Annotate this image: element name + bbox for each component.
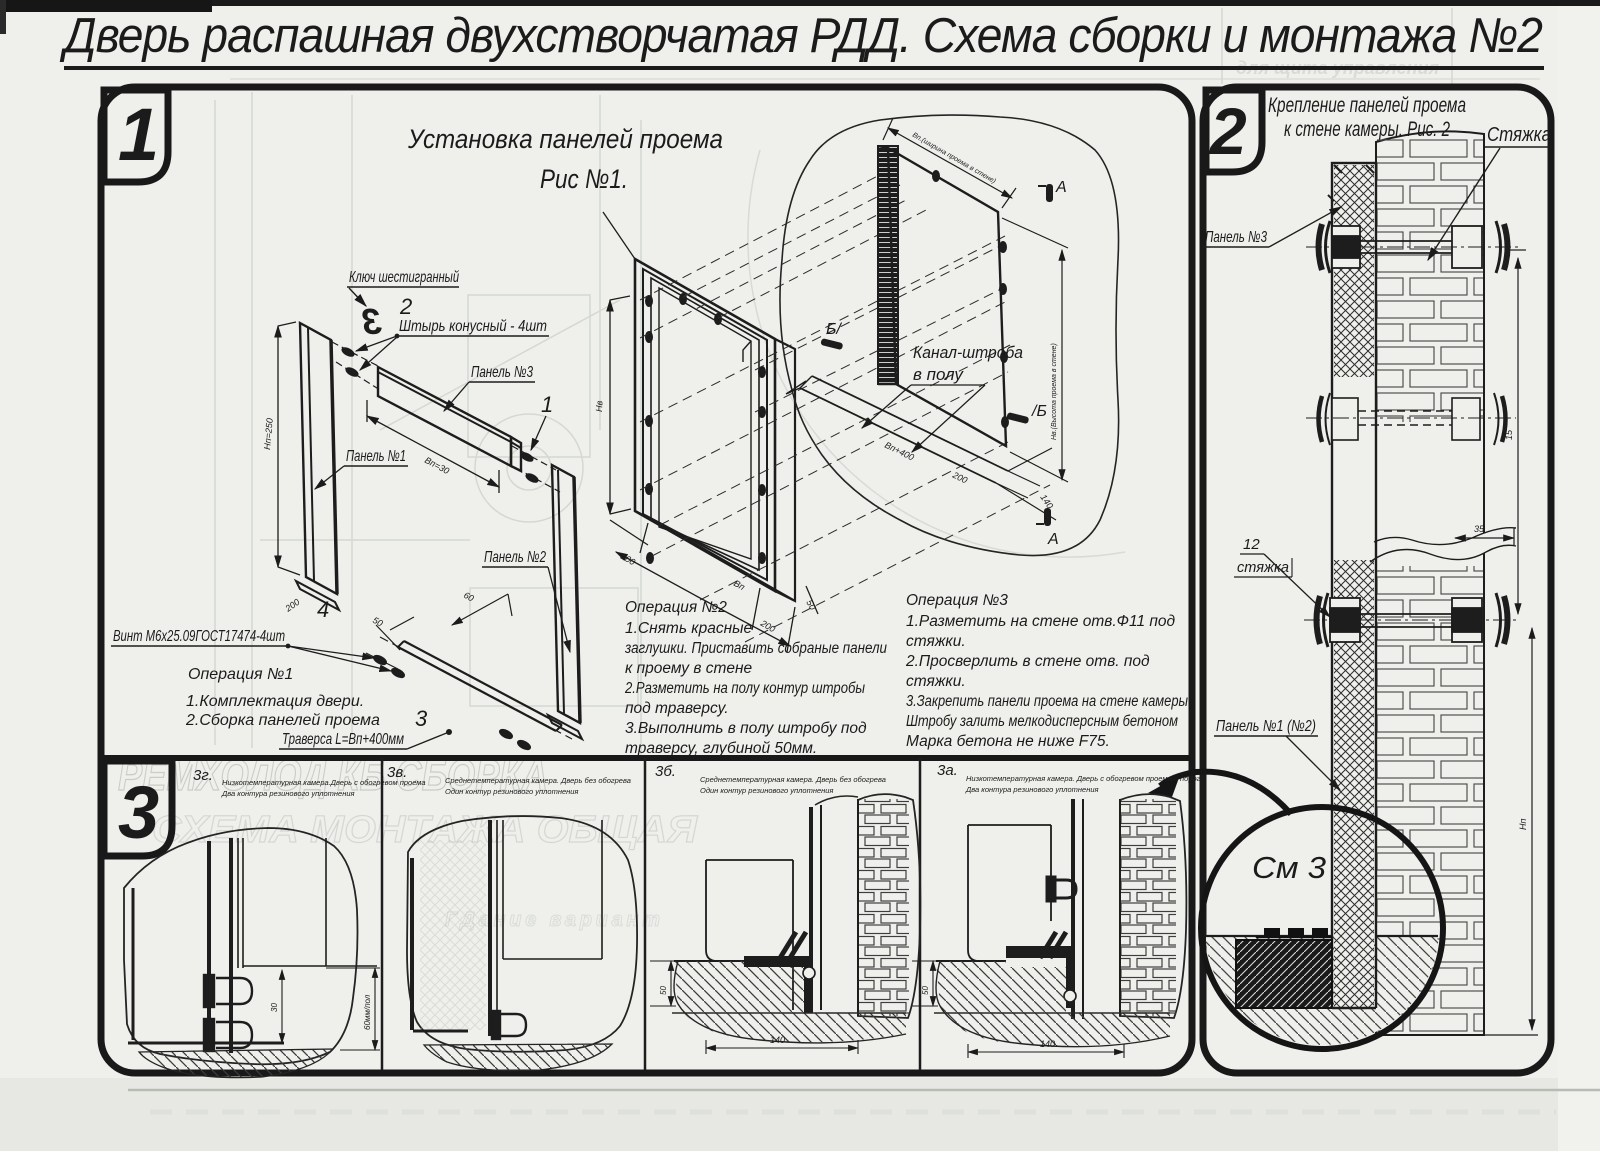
svg-text:1.Разметить на стене отв.Ф11 п: 1.Разметить на стене отв.Ф11 под [906,613,1176,630]
svg-text:Дверь распашная двухстворчатая: Дверь распашная двухстворчатая РДД. Схем… [59,9,1542,63]
svg-text:/Б: /Б [1031,403,1047,420]
svg-text:Панель №3: Панель №3 [1205,229,1267,246]
svg-text:под траверсу.: под траверсу. [625,700,729,717]
svg-text:3: 3 [118,771,159,854]
svg-text:Марка бетона не ниже F75.: Марка бетона не ниже F75. [906,733,1110,750]
svg-text:Среднетемпературная камера. Дв: Среднетемпературная камера. Дверь без об… [700,775,886,784]
svg-text:Нп: Нп [1518,819,1528,830]
svg-text:Б/: Б/ [826,321,842,338]
svg-text:15: 15 [1504,429,1514,440]
svg-text:Нв.(Высота проема в стене): Нв.(Высота проема в стене) [1051,343,1058,440]
svg-text:заглушки. Приставить собраные: заглушки. Приставить собраные панели [624,640,887,657]
svg-text:Один контур резинового уплотне: Один контур резинового уплотнения [445,787,578,796]
svg-text:Панель №3: Панель №3 [471,364,533,381]
svg-text:2.Сборка панелей проема: 2.Сборка панелей проема [185,712,380,729]
svg-text:к проему в стене: к проему в стене [625,660,753,677]
svg-text:2: 2 [399,294,412,319]
svg-text:140: 140 [1040,1039,1055,1049]
svg-text:2.Просверлить в стене отв. по: 2.Просверлить в стене отв. под [905,653,1150,670]
svg-text:1.Комплектация двери.: 1.Комплектация двери. [186,693,364,710]
svg-text:Низкотемпературная камера. Две: Низкотемпературная камера. Дверь с обогр… [966,774,1204,783]
svg-text:12: 12 [1243,536,1260,553]
svg-text:2.Разметить на полу контур штр: 2.Разметить на полу контур штробы [624,680,865,697]
svg-text:1: 1 [118,93,159,176]
svg-text:3б.: 3б. [655,763,676,780]
svg-text:3в.: 3в. [387,764,407,781]
svg-text:стяжки.: стяжки. [906,633,966,650]
svg-text:траверсу, глубиной 50мм.: траверсу, глубиной 50мм. [625,740,817,757]
svg-text:3а.: 3а. [937,762,958,779]
svg-text:Штробу залить мелкодисперсным: Штробу залить мелкодисперсным бетоном [906,713,1178,730]
svg-text:Канал-штроба: Канал-штроба [913,343,1023,362]
svg-text:стяжка: стяжка [1237,559,1289,576]
svg-text:3: 3 [362,301,382,342]
svg-text:3: 3 [415,706,428,731]
svg-text:1: 1 [541,392,553,417]
svg-text:Рис №1.: Рис №1. [540,164,628,194]
svg-text:Панель №1 (№2): Панель №1 (№2) [1216,718,1316,735]
svg-text:1.Снять красные: 1.Снять красные [625,620,753,637]
svg-text:4: 4 [317,597,329,622]
svg-text:3.Закрепить панели проема на с: 3.Закрепить панели проема на стене камер… [906,693,1188,710]
svg-text:3.Выполнить в полу штробу под: 3.Выполнить в полу штробу под [625,720,867,737]
svg-text:Среднетемпературная камера. Дв: Среднетемпературная камера. Дверь без об… [445,776,631,785]
svg-text:в полу: в полу [913,365,964,384]
svg-text:Два контура резинового уплотне: Два контура резинового уплотнения [221,789,355,798]
svg-text:Штырь конусный - 4шт: Штырь конусный - 4шт [399,318,547,335]
svg-text:Нв: Нв [594,400,604,412]
svg-text:Панель №1: Панель №1 [346,448,406,465]
svg-text:Операция №1: Операция №1 [188,666,293,683]
svg-text:50: 50 [921,986,930,995]
svg-text:А: А [1047,531,1059,548]
svg-text:Установка панелей проема: Установка панелей проема [407,124,723,154]
svg-text:Траверса L=Вп+400мм: Траверса L=Вп+400мм [282,731,404,748]
svg-text:30: 30 [270,1003,279,1012]
svg-text:Винт М6х25.09ГОСТ17474-4шт: Винт М6х25.09ГОСТ17474-4шт [113,628,285,645]
svg-text:Один контур резинового уплотне: Один контур резинового уплотнения [700,786,833,795]
svg-text:Операция №3: Операция №3 [906,592,1008,609]
svg-text:50: 50 [659,986,668,995]
svg-text:2: 2 [1208,94,1247,168]
svg-text:60мм/пол: 60мм/пол [363,994,372,1030]
svg-text:Ключ шестигранный: Ключ шестигранный [349,269,459,286]
svg-text:стяжки.: стяжки. [906,673,966,690]
svg-text:35: 35 [1474,524,1485,534]
svg-text:Два контура резинового уплотне: Два контура резинового уплотнения [965,785,1099,794]
svg-text:Операция №2: Операция №2 [625,599,727,616]
svg-text:См 3: См 3 [1252,850,1326,885]
svg-text:Крепление панелей проема: Крепление панелей проема [1268,94,1466,117]
svg-text:3г.: 3г. [193,767,213,784]
svg-text:Стяжка: Стяжка [1487,124,1551,146]
svg-text:к стене камеры. Рис. 2: к стене камеры. Рис. 2 [1284,118,1450,141]
svg-text:Панель №2: Панель №2 [484,549,546,566]
svg-text:А: А [1055,179,1067,196]
svg-text:140: 140 [770,1035,785,1045]
